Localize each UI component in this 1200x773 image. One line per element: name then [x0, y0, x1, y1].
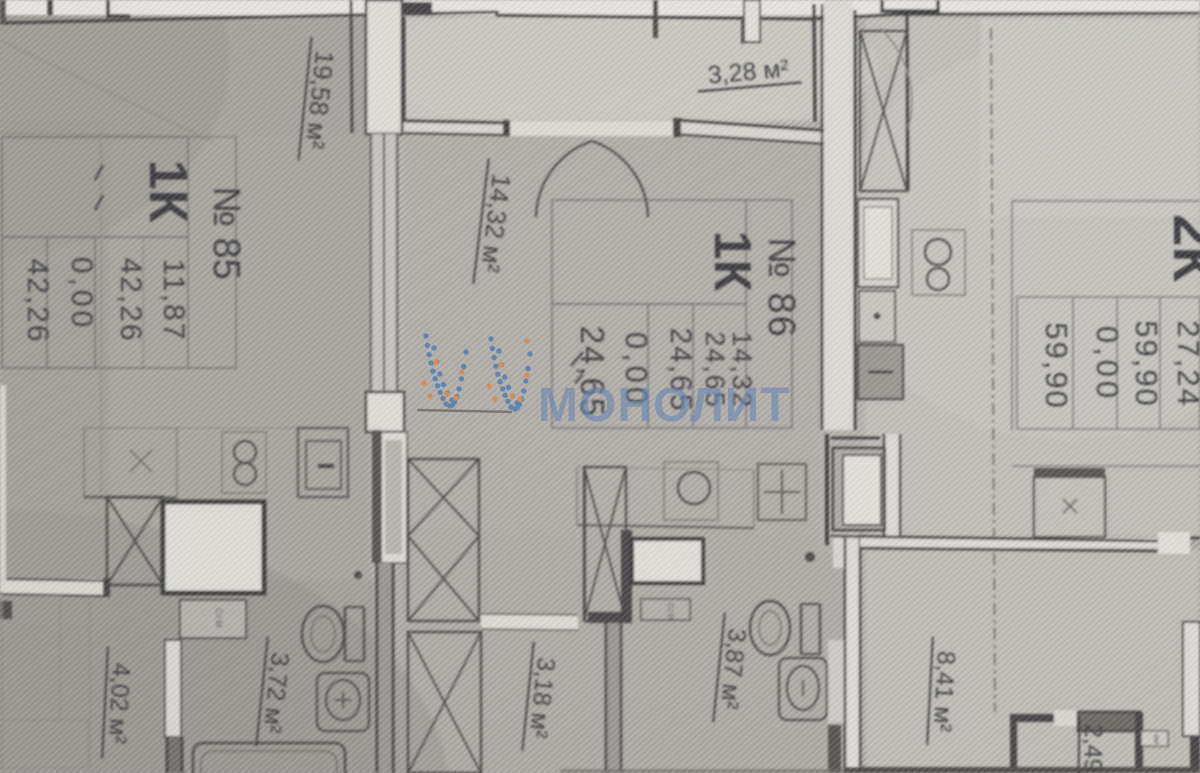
svg-text:МОНОЛИТ: МОНОЛИТ — [538, 379, 791, 432]
